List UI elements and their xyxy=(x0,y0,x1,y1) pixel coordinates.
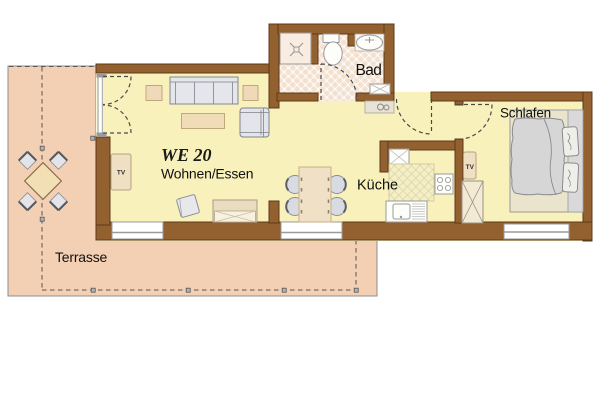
svg-text:Küche: Küche xyxy=(357,178,398,194)
svg-text:Schlafen: Schlafen xyxy=(500,106,551,121)
svg-text:TV: TV xyxy=(466,164,475,171)
svg-text:Wohnen/Essen: Wohnen/Essen xyxy=(161,166,253,182)
svg-text:WE 20: WE 20 xyxy=(161,145,212,165)
svg-text:Terrasse: Terrasse xyxy=(55,249,107,265)
svg-text:TV: TV xyxy=(117,170,126,177)
svg-text:Bad: Bad xyxy=(356,62,382,79)
